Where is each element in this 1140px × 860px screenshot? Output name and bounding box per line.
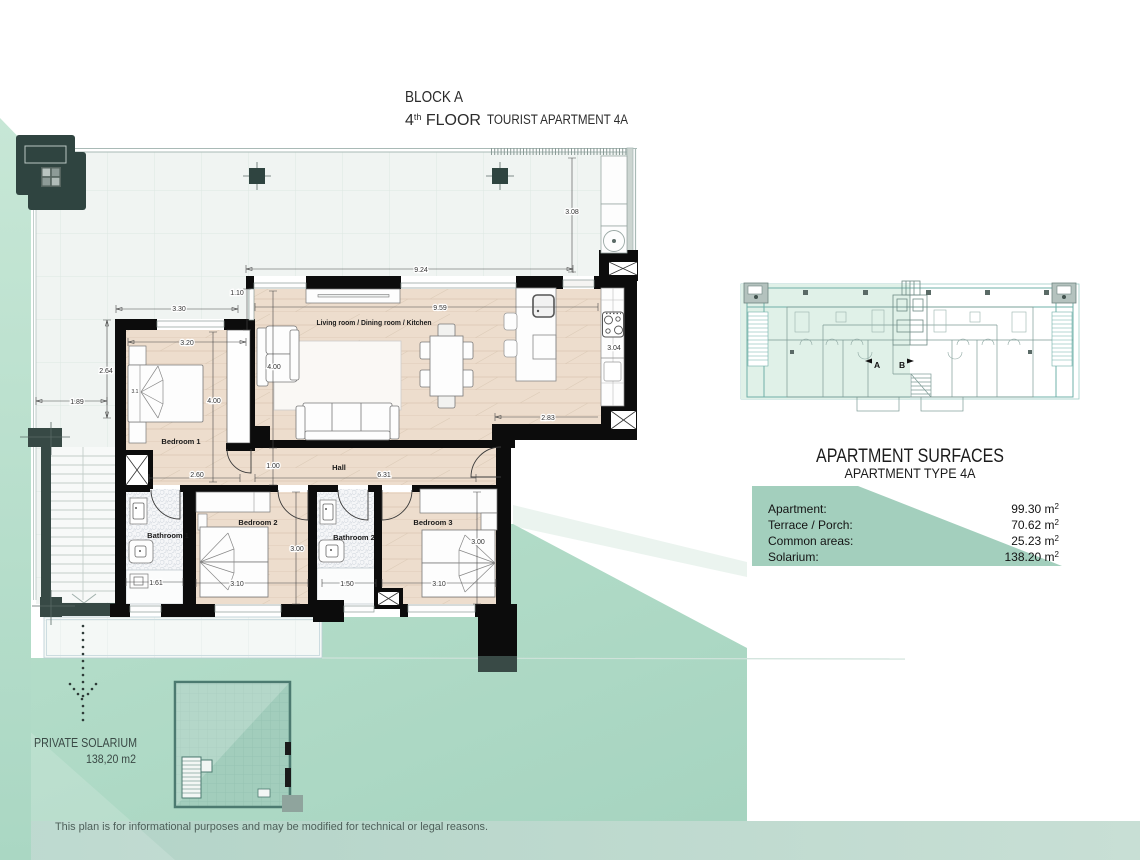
svg-text:A: A (874, 360, 880, 370)
svg-text:Bedroom 1: Bedroom 1 (161, 437, 200, 446)
svg-text:6.31: 6.31 (377, 472, 391, 479)
svg-text:Bathroom 2: Bathroom 2 (333, 533, 375, 542)
svg-text:2.64: 2.64 (99, 368, 113, 375)
svg-text:B: B (899, 360, 905, 370)
svg-text:1.61: 1.61 (149, 580, 163, 587)
svg-text:Terrace / Porch:: Terrace / Porch: (768, 518, 853, 532)
svg-text:Bedroom 2: Bedroom 2 (238, 518, 277, 527)
svg-text:3.00: 3.00 (290, 546, 304, 553)
svg-text:BLOCK A: BLOCK A (405, 89, 463, 106)
svg-text:4.00: 4.00 (267, 364, 281, 371)
svg-text:1.89: 1.89 (70, 399, 84, 406)
svg-text:1.00: 1.00 (266, 463, 280, 470)
svg-text:Common areas:: Common areas: (768, 534, 853, 548)
svg-text:3.08: 3.08 (565, 209, 579, 216)
svg-text:TOURIST APARTMENT 4A: TOURIST APARTMENT 4A (487, 112, 628, 127)
svg-text:Apartment:: Apartment: (768, 502, 827, 516)
svg-text:Living room / Dining room / Ki: Living room / Dining room / Kitchen (317, 320, 432, 327)
svg-text:3.04: 3.04 (607, 345, 621, 352)
svg-text:Hall: Hall (332, 463, 346, 472)
svg-text:9.24: 9.24 (414, 267, 428, 274)
svg-text:138.20 m2: 138.20 m2 (1005, 550, 1060, 564)
svg-text:99.30 m2: 99.30 m2 (1011, 502, 1059, 516)
svg-text:4.00: 4.00 (207, 398, 221, 405)
svg-text:138,20 m2: 138,20 m2 (86, 752, 136, 766)
svg-text:Bathroom 1: Bathroom 1 (147, 531, 189, 540)
svg-text:9.59: 9.59 (433, 305, 447, 312)
svg-text:3.1: 3.1 (132, 389, 139, 395)
svg-text:3.20: 3.20 (180, 340, 194, 347)
svg-text:1.10: 1.10 (230, 290, 244, 297)
svg-text:1.50: 1.50 (340, 581, 354, 588)
svg-text:Bedroom 3: Bedroom 3 (413, 518, 452, 527)
svg-text:2.60: 2.60 (190, 472, 204, 479)
svg-text:APARTMENT SURFACES: APARTMENT SURFACES (816, 446, 1004, 467)
svg-text:3.10: 3.10 (432, 581, 446, 588)
svg-text:Solarium:: Solarium: (768, 550, 819, 564)
svg-text:2.83: 2.83 (541, 415, 555, 422)
svg-text:This plan is for informational: This plan is for informational purposes … (55, 821, 488, 833)
svg-text:3.00: 3.00 (471, 539, 485, 546)
svg-text:3.30: 3.30 (172, 306, 186, 313)
svg-text:3.10: 3.10 (230, 581, 244, 588)
svg-text:25.23 m2: 25.23 m2 (1011, 534, 1059, 548)
svg-text:70.62 m2: 70.62 m2 (1011, 518, 1059, 532)
svg-text:PRIVATE SOLARIUM: PRIVATE SOLARIUM (34, 736, 137, 750)
svg-text:APARTMENT TYPE 4A: APARTMENT TYPE 4A (845, 465, 977, 481)
